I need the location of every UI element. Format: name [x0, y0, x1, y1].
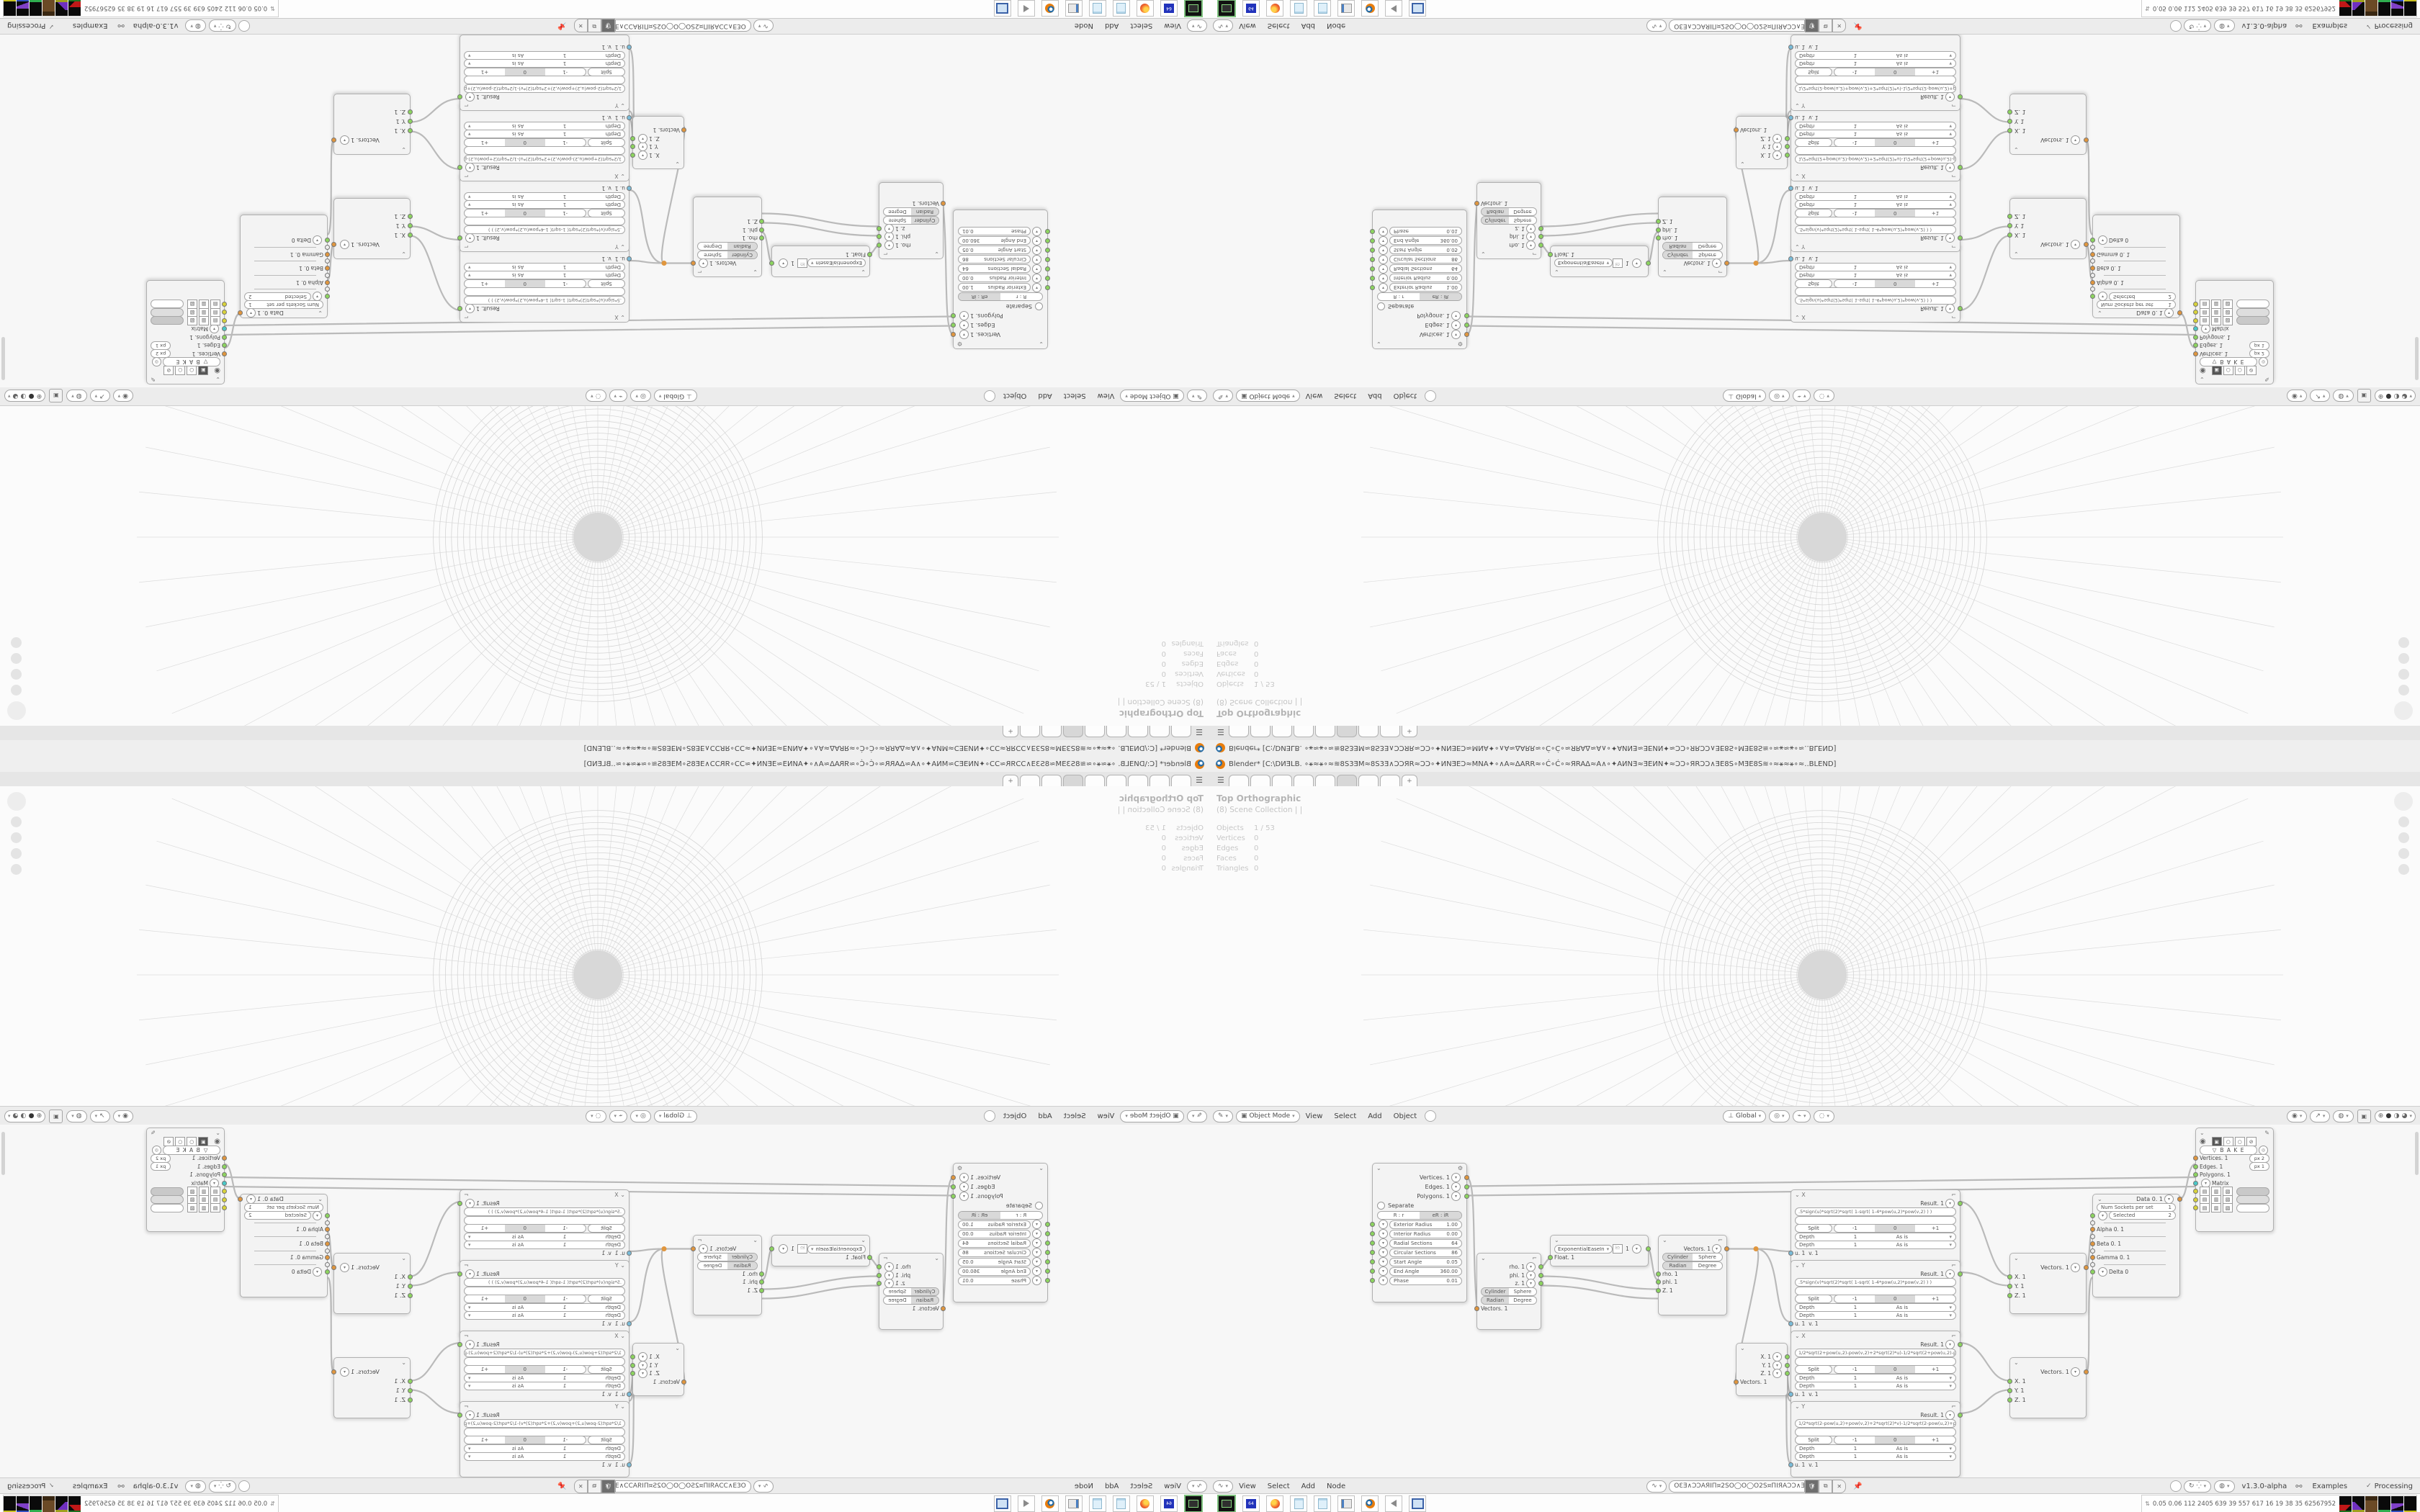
snap-dropdown[interactable]: ⌁▾: [609, 1110, 628, 1122]
display-extra-toggle[interactable]: ⊘: [2246, 366, 2257, 375]
socket-polygons-out[interactable]: [1464, 313, 1469, 318]
depth-row[interactable]: Depth1As is▾: [464, 1452, 625, 1461]
collapse-icon[interactable]: ⌄: [1740, 1345, 1745, 1351]
formula-node-y2[interactable]: ⌄ Y⌐ Result. 1▾ 1/2*sqrt(2-pow(u,2)+pow(…: [460, 35, 629, 111]
socket-color-in[interactable]: [2193, 1197, 2198, 1202]
overlays-dropdown[interactable]: ◍▾: [2333, 390, 2353, 402]
socket-sep[interactable]: [2090, 1234, 2095, 1239]
pin-icon[interactable]: 📌: [1853, 1482, 1862, 1490]
unlink-tree-button[interactable]: ✕: [574, 1480, 588, 1493]
tool-settings-toggle[interactable]: [984, 1110, 995, 1122]
formula-field-2[interactable]: [464, 217, 625, 225]
separate-toggle[interactable]: [1377, 1202, 1385, 1210]
face-shade-icon[interactable]: ▥: [2211, 1203, 2221, 1212]
add-workspace-tab[interactable]: +: [1003, 775, 1018, 786]
easing-node[interactable]: ⌄ ExponentialEaseIn▾🗠1▾ Float. 1: [771, 246, 870, 277]
socket-y-in[interactable]: [408, 223, 413, 228]
input-switch-node[interactable]: ⌄Data 0. 1▾ Num Sockets per set1 ▾Select…: [240, 1194, 328, 1297]
socket-polygons-in[interactable]: [222, 335, 227, 340]
angle-toggle[interactable]: RadianDegree: [1481, 207, 1537, 216]
copy-tree-button[interactable]: ⧉: [588, 1480, 601, 1493]
workspace-tab[interactable]: [1128, 726, 1148, 737]
socket-vectors-out[interactable]: [2084, 242, 2089, 247]
vertex-color-swatch[interactable]: [151, 316, 184, 325]
socket-z-out[interactable]: [877, 1281, 882, 1286]
depth-row[interactable]: Depth1As is▾: [1795, 59, 1956, 68]
socket-param-in[interactable]: [1045, 276, 1050, 281]
taskbar-window[interactable]: [1409, 1495, 1426, 1512]
taskbar-window[interactable]: [994, 1, 1011, 17]
pencil-icon[interactable]: ✎: [2264, 1130, 2269, 1136]
edge-shade-icon[interactable]: ▥: [199, 307, 209, 317]
socket-param-in[interactable]: [1045, 1241, 1050, 1246]
socket-param-in[interactable]: [1370, 1269, 1375, 1274]
menu-view[interactable]: View: [1306, 1112, 1323, 1120]
socket-z-in[interactable]: [1656, 219, 1661, 224]
mode-dropdown[interactable]: ▣ Object Mode▾: [1236, 1110, 1300, 1122]
socket-color-in[interactable]: [2193, 318, 2198, 323]
collapse-icon[interactable]: ⌄: [1795, 1192, 1800, 1198]
tool-settings-toggle[interactable]: [1425, 390, 1436, 402]
overlays-dropdown[interactable]: ◍▾: [66, 1110, 86, 1122]
mode-dropdown[interactable]: ▣ Object Mode▾: [1236, 390, 1300, 402]
vertex-color-icon[interactable]: ▤: [2200, 316, 2210, 325]
socket-y-in[interactable]: [408, 1388, 413, 1393]
formula-field[interactable]: 1/2*sqrt(2+pow(u,2)-pow(v,2)+2*sqrt(2)*u…: [1795, 155, 1956, 163]
workspace-tab[interactable]: [1020, 726, 1040, 737]
taskbar-blender[interactable]: [1361, 1495, 1379, 1512]
collapse-icon[interactable]: ⌄: [2014, 1255, 2019, 1261]
eye-icon[interactable]: ◉: [2200, 1138, 2206, 1146]
torus-mode-toggle[interactable]: R : reR : iR: [958, 293, 1043, 302]
pencil-icon[interactable]: ✎: [2264, 376, 2269, 382]
torus-param-field[interactable]: Phase0.01: [1389, 1277, 1462, 1285]
socket-gamma-in[interactable]: [2090, 1255, 2095, 1260]
socket-vectors-out[interactable]: [691, 261, 696, 266]
workspace-tab[interactable]: [1149, 775, 1170, 786]
socket-param-in[interactable]: [1045, 266, 1050, 271]
workspace-tab[interactable]: [1171, 726, 1191, 737]
socket-polygons-out[interactable]: [951, 1194, 956, 1199]
mode-dropdown[interactable]: ▣ Object Mode▾: [1120, 1110, 1184, 1122]
socket-edges-out[interactable]: [1464, 1184, 1469, 1189]
socket-sep[interactable]: [2090, 273, 2095, 278]
socket-u-in[interactable]: [1788, 115, 1793, 120]
stepper[interactable]: -10+1: [464, 1365, 586, 1374]
pivot-dropdown[interactable]: ◎▾: [630, 390, 650, 402]
add-workspace-tab[interactable]: +: [1402, 726, 1417, 737]
torus-param-field[interactable]: Exterior Radius1.00: [958, 1220, 1031, 1229]
socket-easing-out[interactable]: [1646, 261, 1651, 266]
orientation-dropdown[interactable]: ⊥ Global▾: [654, 1110, 697, 1122]
workspace-tab[interactable]: [1315, 775, 1335, 786]
taskbar-notepad-1[interactable]: [1113, 1, 1130, 17]
wireframe-shading-icon[interactable]: ⊕: [37, 392, 42, 400]
workspace-tab[interactable]: [1358, 775, 1379, 786]
edge-shade-icon[interactable]: ▥: [2211, 307, 2221, 317]
collapse-icon[interactable]: ⌄: [620, 1403, 625, 1410]
formula-field[interactable]: 1/2*sqrt(2-pow(u,2)+pow(v,2)+2*sqrt(2)*v…: [464, 84, 625, 93]
socket-vertices-out[interactable]: [951, 1175, 956, 1180]
depth-row[interactable]: Depth1As is▾: [464, 1374, 625, 1382]
easing-mode-dropdown[interactable]: ExponentialEaseIn▾: [807, 258, 866, 267]
depth-row[interactable]: Depth1As is▾: [1795, 1233, 1956, 1241]
stepper[interactable]: -10+1: [464, 1295, 586, 1303]
rendered-shading-icon[interactable]: ◕: [2402, 392, 2408, 400]
socket-color-in[interactable]: [222, 318, 227, 323]
workspace-tab[interactable]: [1294, 775, 1314, 786]
socket-x-in[interactable]: [2007, 1274, 2012, 1279]
torus-param-field[interactable]: Circular Sections86: [1389, 256, 1462, 264]
socket-z-in[interactable]: [2007, 1398, 2012, 1403]
socket-sep[interactable]: [2090, 259, 2095, 264]
socket-edges-in[interactable]: [222, 1164, 227, 1169]
depth-row[interactable]: Depth1As is▾: [464, 122, 625, 130]
viewer-draw-node[interactable]: ⌄✎ ◉▣○○⊘ ▽B A K E◎ Vertices. 1px 2 Edges…: [146, 1128, 225, 1232]
window-titlebar[interactable]: Blender* [C:\DИƎLB. ∘⚹≈⚹∘≈≋8S3ƎM≈8S3Ǝ∧ƆƆ…: [0, 756, 1210, 773]
collapse-icon[interactable]: ⌄: [753, 1237, 758, 1243]
socket-z-out[interactable]: [630, 1371, 635, 1376]
socket-result-out[interactable]: [457, 165, 462, 170]
socket-polygons-in[interactable]: [2193, 335, 2198, 340]
depth-row[interactable]: Depth1As is▾: [1795, 1444, 1956, 1453]
visibility-dropdown[interactable]: ◉▾: [113, 1110, 133, 1122]
fake-user-button[interactable]: 🛡: [1805, 19, 1819, 33]
selected-field[interactable]: Selected2: [2109, 1211, 2176, 1220]
coords-toggle[interactable]: CylinderSphere: [883, 216, 939, 225]
formula-field-2[interactable]: [464, 1216, 625, 1225]
vector-out-node[interactable]: ⌄ X. 1▾ Y. 1▾ Z. 1▾ Vectors. 1: [1736, 116, 1788, 169]
workspace-tab[interactable]: [1020, 775, 1040, 786]
display-vertices-toggle[interactable]: ▣: [2212, 366, 2222, 375]
socket-beta-in[interactable]: [2090, 1241, 2095, 1246]
collapse-icon[interactable]: ⌄: [401, 251, 406, 257]
easing-node[interactable]: ⌄ ExponentialEaseIn▾🗠1▾ Float. 1: [1550, 1235, 1649, 1266]
split-button[interactable]: Split: [588, 1295, 625, 1303]
socket-y-out[interactable]: [630, 1363, 635, 1368]
hamburger-menu-icon[interactable]: ☰: [1196, 727, 1203, 737]
collapse-icon[interactable]: ⌄: [215, 1130, 220, 1136]
menu-view[interactable]: View: [1306, 392, 1323, 400]
socket-vectors-in[interactable]: [1734, 1380, 1739, 1385]
hamburger-menu-icon[interactable]: ☰: [1217, 775, 1224, 785]
socket-vectors-out[interactable]: [691, 1246, 696, 1251]
taskbar-firefox[interactable]: [1266, 1495, 1283, 1512]
collapse-icon[interactable]: ⌄: [1795, 1403, 1800, 1410]
taskbar-blender[interactable]: [1361, 1, 1379, 17]
socket-z-out[interactable]: [1538, 226, 1543, 231]
socket-result-out[interactable]: [1958, 306, 1963, 311]
socket-sep[interactable]: [2090, 1220, 2095, 1225]
stepper[interactable]: -10+1: [1834, 1365, 1956, 1374]
socket-selected-in[interactable]: [2090, 1213, 2095, 1218]
display-faces-toggle[interactable]: ○: [2235, 366, 2245, 375]
depth-row[interactable]: Depth1As is▾: [1795, 122, 1956, 130]
socket-param-in[interactable]: [1045, 238, 1050, 243]
move-gizmo-icon[interactable]: [2398, 832, 2409, 843]
socket-color-in[interactable]: [222, 302, 227, 307]
point-size-field[interactable]: px 2: [151, 1154, 171, 1163]
collapse-icon[interactable]: ⌄: [1795, 1333, 1800, 1339]
material-shading-icon[interactable]: ◑: [21, 1112, 27, 1120]
menu-select[interactable]: Select: [1064, 392, 1086, 400]
collapse-icon[interactable]: ⌄: [620, 1262, 625, 1269]
socket-matrix-in[interactable]: [2193, 326, 2198, 331]
socket-sep[interactable]: [2090, 1262, 2095, 1267]
edge-color-swatch[interactable]: [151, 1195, 184, 1204]
socket-edges-in[interactable]: [2193, 343, 2198, 348]
menu-view[interactable]: View: [1239, 1482, 1256, 1490]
viewer-draw-node[interactable]: ⌄✎ ◉▣○○⊘ ▽B A K E◎ Vertices. 1px 2 Edges…: [2195, 1128, 2274, 1232]
display-vertices-toggle[interactable]: ▣: [198, 366, 208, 375]
menu-object[interactable]: Object: [1394, 1112, 1417, 1120]
ortho-gizmo-icon[interactable]: [12, 864, 22, 875]
stepper[interactable]: -10+1: [1834, 1436, 1956, 1444]
taskbar-floppy64[interactable]: 64: [1160, 1495, 1178, 1512]
vector-in-node-2[interactable]: ⌄ Vectors. 1▾ X. 1 Y. 1 Z. 1: [2009, 94, 2087, 155]
socket-sep[interactable]: [2090, 245, 2095, 250]
editor-scrollbar[interactable]: [2415, 337, 2419, 380]
vector-polar-out-node[interactable]: ⌄⌐ rho. 1▾ phi. 1▾ z. 1▾ CylinderSphere …: [1476, 182, 1541, 259]
menu-object[interactable]: Object: [1003, 1112, 1027, 1120]
unlink-tree-button[interactable]: ✕: [1832, 1480, 1846, 1493]
stepper[interactable]: -10+1: [464, 1224, 586, 1233]
proportional-edit-dropdown[interactable]: ◌▾: [586, 390, 606, 402]
parent-tree-button[interactable]: [238, 20, 250, 32]
socket-color-in[interactable]: [2193, 302, 2198, 307]
split-button[interactable]: Split: [588, 1436, 625, 1444]
socket-u-in[interactable]: [1788, 256, 1793, 261]
angle-toggle[interactable]: RadianDegree: [697, 1261, 758, 1270]
depth-row[interactable]: Depth1As is▾: [464, 200, 625, 209]
edge-width-field[interactable]: px 1: [151, 1162, 171, 1171]
collapse-icon[interactable]: ⌄: [1481, 251, 1486, 257]
socket-x-out[interactable]: [1785, 153, 1790, 158]
menu-object[interactable]: Object: [1394, 392, 1417, 400]
vector-polar-in-node[interactable]: ⌄⌐ Vectors. 1▾ CylinderSphere RadianDegr…: [1658, 1235, 1727, 1315]
socket-data-out[interactable]: [238, 1197, 243, 1202]
socket-float-in[interactable]: [867, 1255, 872, 1260]
socket-result-out[interactable]: [1958, 165, 1963, 170]
vector-in-node-1[interactable]: ⌄ Vectors. 1▾ X. 1 Y. 1 Z. 1: [333, 1253, 411, 1314]
formula-node-y1[interactable]: ⌄ Y⌐ Result. 1▾ .5*sign(v)*sqrt(2)*sqrt(…: [1791, 176, 1960, 252]
socket-x-out[interactable]: [630, 1354, 635, 1359]
rendered-shading-icon[interactable]: ◕: [13, 1112, 19, 1120]
socket-u-in[interactable]: [1788, 1392, 1793, 1397]
wireframe-shading-icon[interactable]: ⊕: [2378, 1112, 2384, 1120]
pencil-icon[interactable]: ✎: [151, 376, 156, 382]
solid-shading-icon[interactable]: ●: [2386, 392, 2392, 400]
socket-x-in[interactable]: [408, 1379, 413, 1384]
socket-gamma-in[interactable]: [325, 252, 330, 257]
formula-field[interactable]: 1/2*sqrt(2+pow(u,2)-pow(v,2)+2*sqrt(2)*u…: [464, 1349, 625, 1357]
formula-node-y2[interactable]: ⌄ Y⌐ Result. 1▾ 1/2*sqrt(2-pow(u,2)+pow(…: [1791, 1401, 1960, 1477]
pin-icon[interactable]: 📌: [557, 1482, 566, 1490]
socket-param-in[interactable]: [1370, 248, 1375, 253]
formula-field-2[interactable]: [1795, 1428, 1956, 1436]
snap-dropdown[interactable]: ⌁▾: [609, 390, 628, 402]
workspace-tab[interactable]: [1171, 775, 1191, 786]
formula-field[interactable]: 1/2*sqrt(2+pow(u,2)-pow(v,2)+2*sqrt(2)*u…: [464, 155, 625, 163]
processing-toggle[interactable]: Processing: [7, 1482, 45, 1490]
xray-toggle[interactable]: ▣: [49, 390, 63, 403]
taskbar-firefox[interactable]: [1137, 1495, 1154, 1512]
stepper[interactable]: -10+1: [1834, 68, 1956, 76]
torus-param-field[interactable]: End Angle360.00: [1389, 1267, 1462, 1276]
socket-alpha-in[interactable]: [2090, 1227, 2095, 1232]
socket-result-out[interactable]: [457, 1342, 462, 1347]
workspace-tab[interactable]: [1041, 726, 1062, 737]
collapse-icon[interactable]: ⌄: [934, 251, 939, 257]
menu-node[interactable]: Node: [1327, 22, 1345, 30]
socket-param-in[interactable]: [1370, 257, 1375, 262]
torus-param-field[interactable]: Interior Radius0.00: [958, 274, 1031, 283]
parent-tree-button[interactable]: [238, 1480, 250, 1492]
socket-y-in[interactable]: [2007, 223, 2012, 228]
snap-group[interactable]: ↻ ⁛▾: [209, 1480, 236, 1493]
num-sockets-field[interactable]: Num Sockets per set1: [244, 1203, 323, 1212]
split-button[interactable]: Split: [1795, 1295, 1832, 1303]
socket-phi-out[interactable]: [877, 1273, 882, 1278]
formula-node-x1[interactable]: ⌄ X⌐ Result. 1▾ .5*sign(u)*sqrt(2)*sqrt(…: [460, 1189, 629, 1266]
collapse-icon[interactable]: ⌄: [1795, 173, 1800, 179]
socket-matrix-in[interactable]: [222, 1181, 227, 1186]
viewer-draw-node[interactable]: ⌄✎ ◉▣○○⊘ ▽B A K E◎ Vertices. 1px 2 Edges…: [2195, 280, 2274, 384]
collapse-icon[interactable]: ⌄: [1662, 1237, 1667, 1243]
collapse-icon[interactable]: ⌄: [2097, 310, 2102, 317]
socket-phi-in[interactable]: [1656, 228, 1661, 233]
pivot-dropdown[interactable]: ◎▾: [1769, 1110, 1789, 1122]
window-titlebar[interactable]: Blender* [C:\DИƎLB. ∘⚹≈⚹∘≈≋8S3ƎM≈8S3Ǝ∧ƆƆ…: [1210, 739, 2420, 756]
split-button[interactable]: Split: [1795, 1436, 1832, 1444]
snap-dropdown[interactable]: ⌁▾: [1793, 390, 1811, 402]
proportional-edit-dropdown[interactable]: ◌▾: [1814, 390, 1834, 402]
formula-field-2[interactable]: [1795, 1287, 1956, 1295]
coords-toggle[interactable]: CylinderSphere: [1481, 216, 1537, 225]
num-sockets-field[interactable]: Num Sockets per set1: [2097, 1203, 2176, 1212]
torus-param-field[interactable]: Start Angle0.05: [1389, 1258, 1462, 1266]
socket-u-in[interactable]: [627, 115, 632, 120]
torus-node[interactable]: ⌄⚙ Vertices. 1▾ Edges. 1▾ Polygons. 1▾ S…: [953, 210, 1048, 349]
socket-param-in[interactable]: [1370, 1250, 1375, 1255]
collapse-icon[interactable]: ⌄: [318, 310, 323, 317]
edge-width-field[interactable]: px 1: [2249, 341, 2269, 350]
socket-rho-in[interactable]: [759, 1272, 764, 1277]
taskbar-floppy64[interactable]: 64: [1242, 1495, 1260, 1512]
torus-param-field[interactable]: Interior Radius0.00: [958, 1230, 1031, 1238]
collapse-icon[interactable]: ⌄: [1039, 1165, 1044, 1171]
socket-selected-in[interactable]: [2090, 294, 2095, 299]
socket-vectors-in[interactable]: [941, 1306, 946, 1311]
depth-row[interactable]: Depth1As is▾: [464, 1311, 625, 1320]
bake-settings-icon[interactable]: ◎: [152, 357, 161, 366]
workspace-tab[interactable]: [1229, 775, 1249, 786]
input-switch-node[interactable]: ⌄Data 0. 1▾ Num Sockets per set1 ▾Select…: [2092, 1194, 2180, 1297]
solid-shading-icon[interactable]: ●: [29, 1112, 35, 1120]
depth-row[interactable]: Depth1As is▾: [1795, 192, 1956, 201]
socket-y-in[interactable]: [408, 119, 413, 124]
zoom-gizmo-icon[interactable]: [12, 685, 22, 696]
socket-matrix-in[interactable]: [2193, 1181, 2198, 1186]
stepper[interactable]: -10+1: [1834, 279, 1956, 288]
camera-gizmo-icon[interactable]: [2398, 653, 2409, 664]
bake-button[interactable]: ▽B A K E: [2200, 1146, 2257, 1155]
menu-add[interactable]: Add: [1368, 392, 1381, 400]
camera-gizmo-icon[interactable]: [12, 653, 22, 664]
display-faces-toggle[interactable]: ○: [175, 366, 185, 375]
bake-button[interactable]: ▽B A K E: [163, 1146, 220, 1155]
display-edges-toggle[interactable]: ○: [187, 366, 197, 375]
window-titlebar[interactable]: Blender* [C:\DИƎLB. ∘⚹≈⚹∘≈≋8S3ƎM≈8S3Ǝ∧ƆƆ…: [0, 739, 1210, 756]
menu-view[interactable]: View: [1098, 1112, 1115, 1120]
depth-row[interactable]: Depth1As is▾: [464, 271, 625, 279]
depth-row[interactable]: Depth1As is▾: [1795, 271, 1956, 279]
socket-param-in[interactable]: [1045, 1231, 1050, 1236]
socket-u-in[interactable]: [1788, 1251, 1793, 1256]
workspace-tab[interactable]: [1229, 726, 1249, 737]
menu-object[interactable]: Object: [1003, 392, 1027, 400]
socket-param-in[interactable]: [1370, 276, 1375, 281]
torus-param-field[interactable]: End Angle360.00: [958, 237, 1031, 246]
hamburger-menu-icon[interactable]: ☰: [1196, 775, 1203, 785]
camera-gizmo-icon[interactable]: [12, 848, 22, 859]
socket-u-in[interactable]: [1788, 1321, 1793, 1326]
socket-color-in[interactable]: [2193, 1189, 2198, 1194]
fake-user-button[interactable]: 🛡: [1805, 1480, 1819, 1493]
formula-node-x2[interactable]: ⌄ X⌐ Result. 1▾ 1/2*sqrt(2+pow(u,2)-pow(…: [460, 1331, 629, 1407]
formula-node-y2[interactable]: ⌄ Y⌐ Result. 1▾ 1/2*sqrt(2-pow(u,2)+pow(…: [460, 1401, 629, 1477]
input-switch-node[interactable]: ⌄Data 0. 1▾ Num Sockets per set1 ▾Select…: [2092, 215, 2180, 318]
socket-sep[interactable]: [325, 245, 330, 250]
xray-toggle[interactable]: ▣: [49, 1110, 63, 1123]
wireframe-shading-icon[interactable]: ⊕: [2378, 392, 2384, 400]
socket-u-in[interactable]: [1788, 45, 1793, 50]
axis-gizmo-icon[interactable]: [2394, 792, 2413, 811]
angle-toggle[interactable]: RadianDegree: [697, 242, 758, 251]
vertex-color-swatch[interactable]: [2236, 1187, 2269, 1196]
xray-toggle[interactable]: ▣: [2357, 1110, 2371, 1123]
bake-settings-icon[interactable]: ◎: [152, 1146, 161, 1155]
vertex-shade-icon[interactable]: ▥: [2211, 316, 2221, 325]
formula-node-y1[interactable]: ⌄ Y⌐ Result. 1▾ .5*sign(v)*sqrt(2)*sqrt(…: [460, 176, 629, 252]
socket-vectors-out[interactable]: [331, 1369, 336, 1374]
parent-tree-button[interactable]: [2170, 1480, 2182, 1492]
eye-icon[interactable]: ◉: [2200, 366, 2206, 374]
pencil-icon[interactable]: ✎: [151, 1130, 156, 1136]
processing-toggle[interactable]: Processing: [7, 22, 45, 30]
taskbar-floppy64[interactable]: 64: [1242, 1, 1260, 17]
formula-field[interactable]: 1/2*sqrt(2-pow(u,2)+pow(v,2)+2*sqrt(2)*v…: [1795, 84, 1956, 93]
taskbar-notepad-2[interactable]: [1314, 1, 1331, 17]
vector-out-node[interactable]: ⌄ X. 1▾ Y. 1▾ Z. 1▾ Vectors. 1: [632, 1343, 684, 1396]
socket-sep[interactable]: [325, 273, 330, 278]
eye-icon[interactable]: ◉: [214, 366, 220, 374]
socket-vectors-in[interactable]: [1734, 127, 1739, 132]
socket-vectors-out[interactable]: [1724, 261, 1729, 266]
mode-dropdown[interactable]: ▣ Object Mode▾: [1120, 390, 1184, 402]
split-button[interactable]: Split: [588, 1365, 625, 1374]
vector-in-node-2[interactable]: ⌄ Vectors. 1▾ X. 1 Y. 1 Z. 1: [333, 1357, 411, 1418]
menu-select[interactable]: Select: [1334, 392, 1356, 400]
tree-name-field[interactable]: OƐƎ∧ƆƆAЯIΠ¤2SO◯O◯O2S¤ΠIЯAƆƆ∧ƎƐO: [615, 1480, 751, 1493]
menu-view[interactable]: View: [1164, 22, 1181, 30]
stepper[interactable]: -10+1: [1834, 209, 1956, 217]
coords-toggle[interactable]: CylinderSphere: [1481, 1287, 1537, 1296]
visibility-dropdown[interactable]: ◉▾: [113, 390, 133, 402]
processing-toggle[interactable]: Processing: [2375, 1482, 2413, 1490]
depth-row[interactable]: Depth1As is▾: [464, 130, 625, 138]
pin-icon[interactable]: 📌: [557, 22, 566, 30]
